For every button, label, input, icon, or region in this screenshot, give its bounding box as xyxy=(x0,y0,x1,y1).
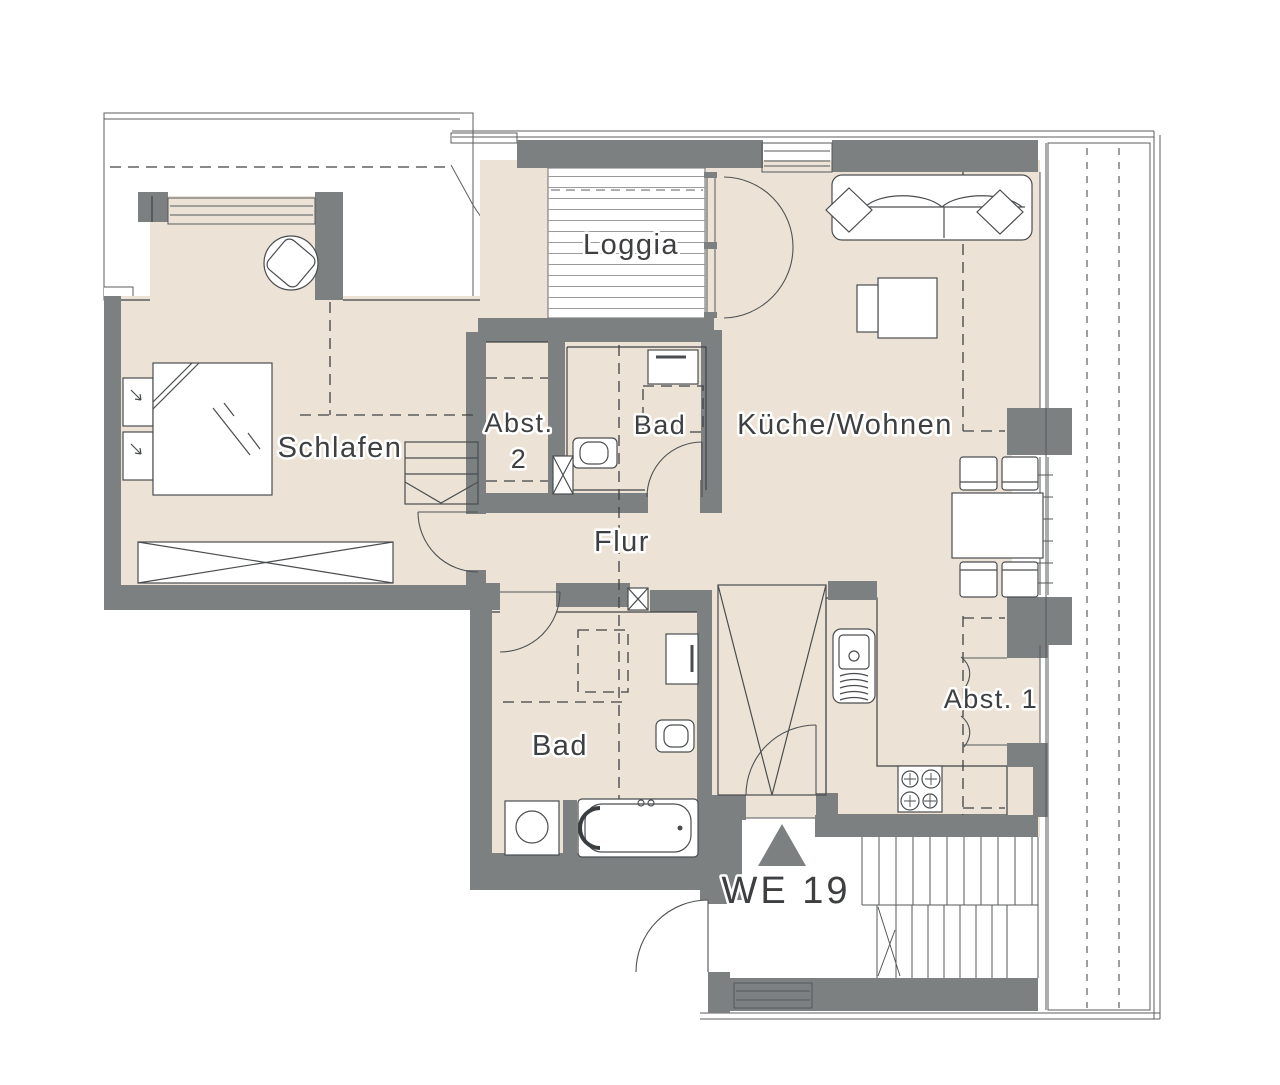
side-table xyxy=(857,278,937,338)
shaft xyxy=(628,588,648,610)
dining-set xyxy=(952,457,1043,597)
room-label-abst2-line1: Abst. xyxy=(484,408,553,438)
washbasin xyxy=(648,350,698,384)
shaft xyxy=(553,456,573,494)
room-label-kueche-wohnen: Küche/Wohnen xyxy=(737,409,953,441)
dining-table xyxy=(952,493,1043,558)
bathtub xyxy=(578,799,698,857)
room-label-abst2-line2: 2 xyxy=(511,444,528,474)
sofa xyxy=(826,175,1032,240)
floor-plan-drawing: Loggia Schlafen Abst. 2 Bad Küche/Wohnen… xyxy=(0,0,1280,1085)
toilet xyxy=(656,720,694,752)
wardrobe xyxy=(138,542,393,583)
nightstand xyxy=(123,378,153,426)
room-label-bad-upper: Bad xyxy=(634,410,687,440)
nightstand xyxy=(123,432,153,480)
kitchen-sink xyxy=(833,629,875,703)
floor-plan-page: Loggia Schlafen Abst. 2 Bad Küche/Wohnen… xyxy=(0,0,1280,1085)
room-label-abst1: Abst. 1 xyxy=(944,684,1039,714)
armchair xyxy=(264,236,318,290)
room-label-schlafen: Schlafen xyxy=(278,432,403,464)
room-label-bad-lower: Bad xyxy=(532,730,588,762)
toilet xyxy=(573,438,617,468)
room-label-loggia: Loggia xyxy=(583,229,679,261)
room-label-flur: Flur xyxy=(594,526,650,558)
bed xyxy=(153,363,272,495)
stove xyxy=(898,766,942,812)
washing-machine xyxy=(505,801,559,855)
unit-label: WE 19 xyxy=(721,870,850,912)
